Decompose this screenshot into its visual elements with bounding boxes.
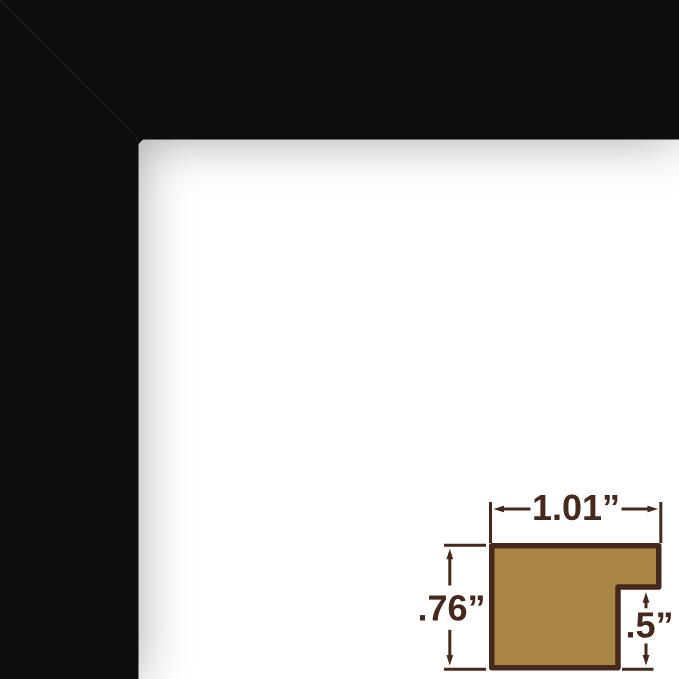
svg-text:.76”: .76” [417,588,485,629]
svg-text:.5”: .5” [625,605,673,646]
svg-text:1.01”: 1.01” [532,487,620,528]
